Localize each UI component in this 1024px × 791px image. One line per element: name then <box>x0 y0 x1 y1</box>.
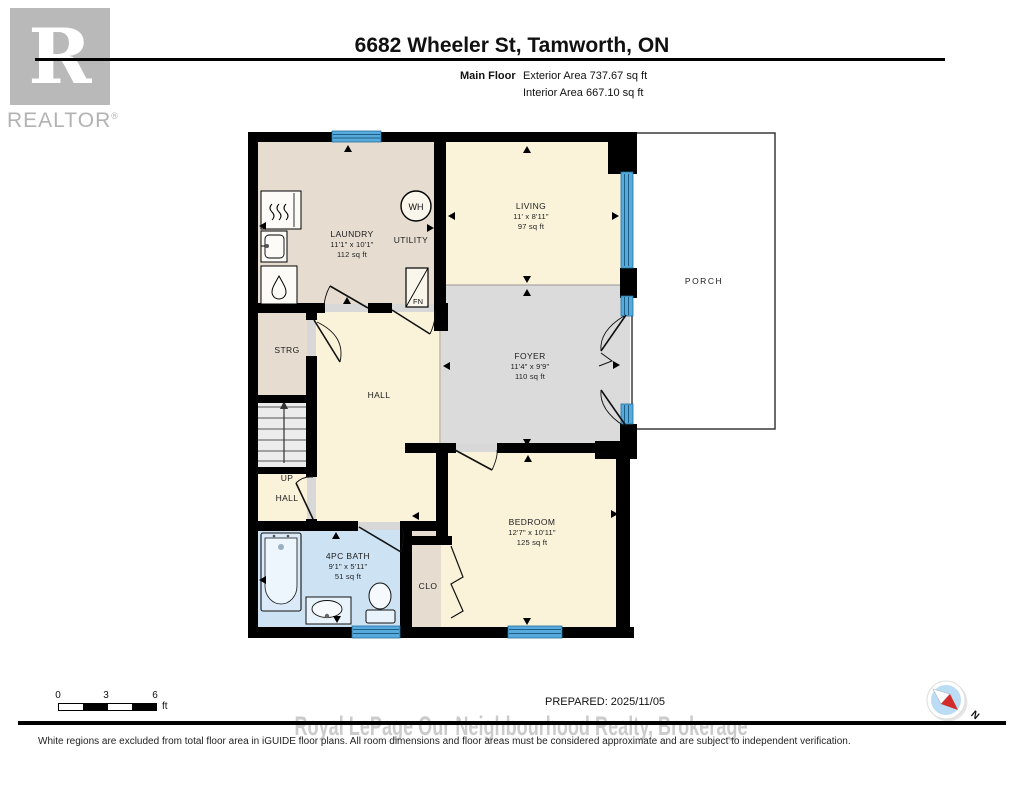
floorplan-page: R REALTOR® 6682 Wheeler St, Tamworth, ON… <box>0 0 1024 791</box>
room-label-living: LIVING 11' x 8'11" 97 sq ft <box>513 201 548 232</box>
door-bath <box>359 527 403 552</box>
dryer-icon <box>261 191 301 229</box>
window-living-right <box>621 172 633 268</box>
scale-bar-segments <box>58 703 157 711</box>
door-closet-bifold <box>451 546 463 618</box>
room-label-hall-lower: HALL <box>276 493 299 504</box>
scale-tick-0: 0 <box>55 690 61 701</box>
furnace-icon: FN <box>406 268 428 307</box>
room-label-hall: HALL <box>368 390 391 401</box>
dimension-arrows <box>259 145 620 625</box>
walls <box>248 132 637 638</box>
door-storage <box>314 320 341 362</box>
registered-mark: ® <box>111 111 119 121</box>
window-foyer-right-lower <box>621 404 633 424</box>
room-label-utility: UTILITY <box>394 235 428 246</box>
laundry-sink-icon <box>261 231 287 262</box>
room-label-bath: 4PC BATH 9'1" x 5'11" 51 sq ft <box>326 551 370 582</box>
room-fills <box>253 135 630 630</box>
room-label-laundry: LAUNDRY 11'1" x 10'1" 112 sq ft <box>330 229 373 260</box>
windows <box>332 131 633 638</box>
footer-divider <box>18 721 1006 725</box>
washer-icon <box>261 266 297 304</box>
compass-icon: N <box>927 681 981 722</box>
door-utility <box>392 310 435 334</box>
scale-unit: ft <box>162 701 168 712</box>
stairs <box>253 401 314 463</box>
interior-area: Interior Area 667.10 sq ft <box>523 87 643 99</box>
room-label-bedroom: BEDROOM 12'7" x 10'11" 125 sq ft <box>508 517 556 548</box>
water-heater-icon: WH <box>401 191 431 221</box>
toilet-icon <box>366 583 395 623</box>
svg-text:WH: WH <box>409 202 424 212</box>
bathtub-icon <box>261 533 301 611</box>
floorplan-drawing: WH FN <box>0 0 1024 791</box>
door-thresholds <box>307 304 497 530</box>
title-rule <box>35 58 945 61</box>
window-foyer-right-upper <box>621 296 633 316</box>
prepared-date: PREPARED: 2025/11/05 <box>545 696 665 708</box>
room-label-up: UP <box>281 473 294 484</box>
door-bedroom <box>455 450 497 470</box>
scale-tick-3: 3 <box>103 690 109 701</box>
disclaimer-text: White regions are excluded from total fl… <box>38 736 851 747</box>
window-bedroom <box>508 626 562 638</box>
scale-bar: 0 3 6 ft <box>58 690 188 716</box>
exterior-area: Exterior Area 737.67 sq ft <box>523 70 647 82</box>
room-label-porch: PORCH <box>685 276 723 287</box>
scale-tick-6: 6 <box>152 690 158 701</box>
stairs-up-arrow-icon <box>280 401 288 409</box>
svg-text:FN: FN <box>413 297 423 306</box>
window-laundry <box>332 131 381 142</box>
realtor-logo-word: REALTOR® <box>7 109 119 133</box>
floor-label: Main Floor <box>460 70 516 82</box>
room-label-foyer: FOYER 11'4" x 9'9" 110 sq ft <box>511 351 550 382</box>
room-label-storage: STRG <box>274 345 299 356</box>
room-label-closet: CLO <box>419 581 438 592</box>
door-hall-lower <box>296 477 313 519</box>
page-title: 6682 Wheeler St, Tamworth, ON <box>0 34 1024 58</box>
vanity-sink-icon <box>306 597 351 624</box>
window-bath <box>352 626 400 638</box>
door-front-double <box>599 315 626 426</box>
door-laundry <box>324 286 368 308</box>
